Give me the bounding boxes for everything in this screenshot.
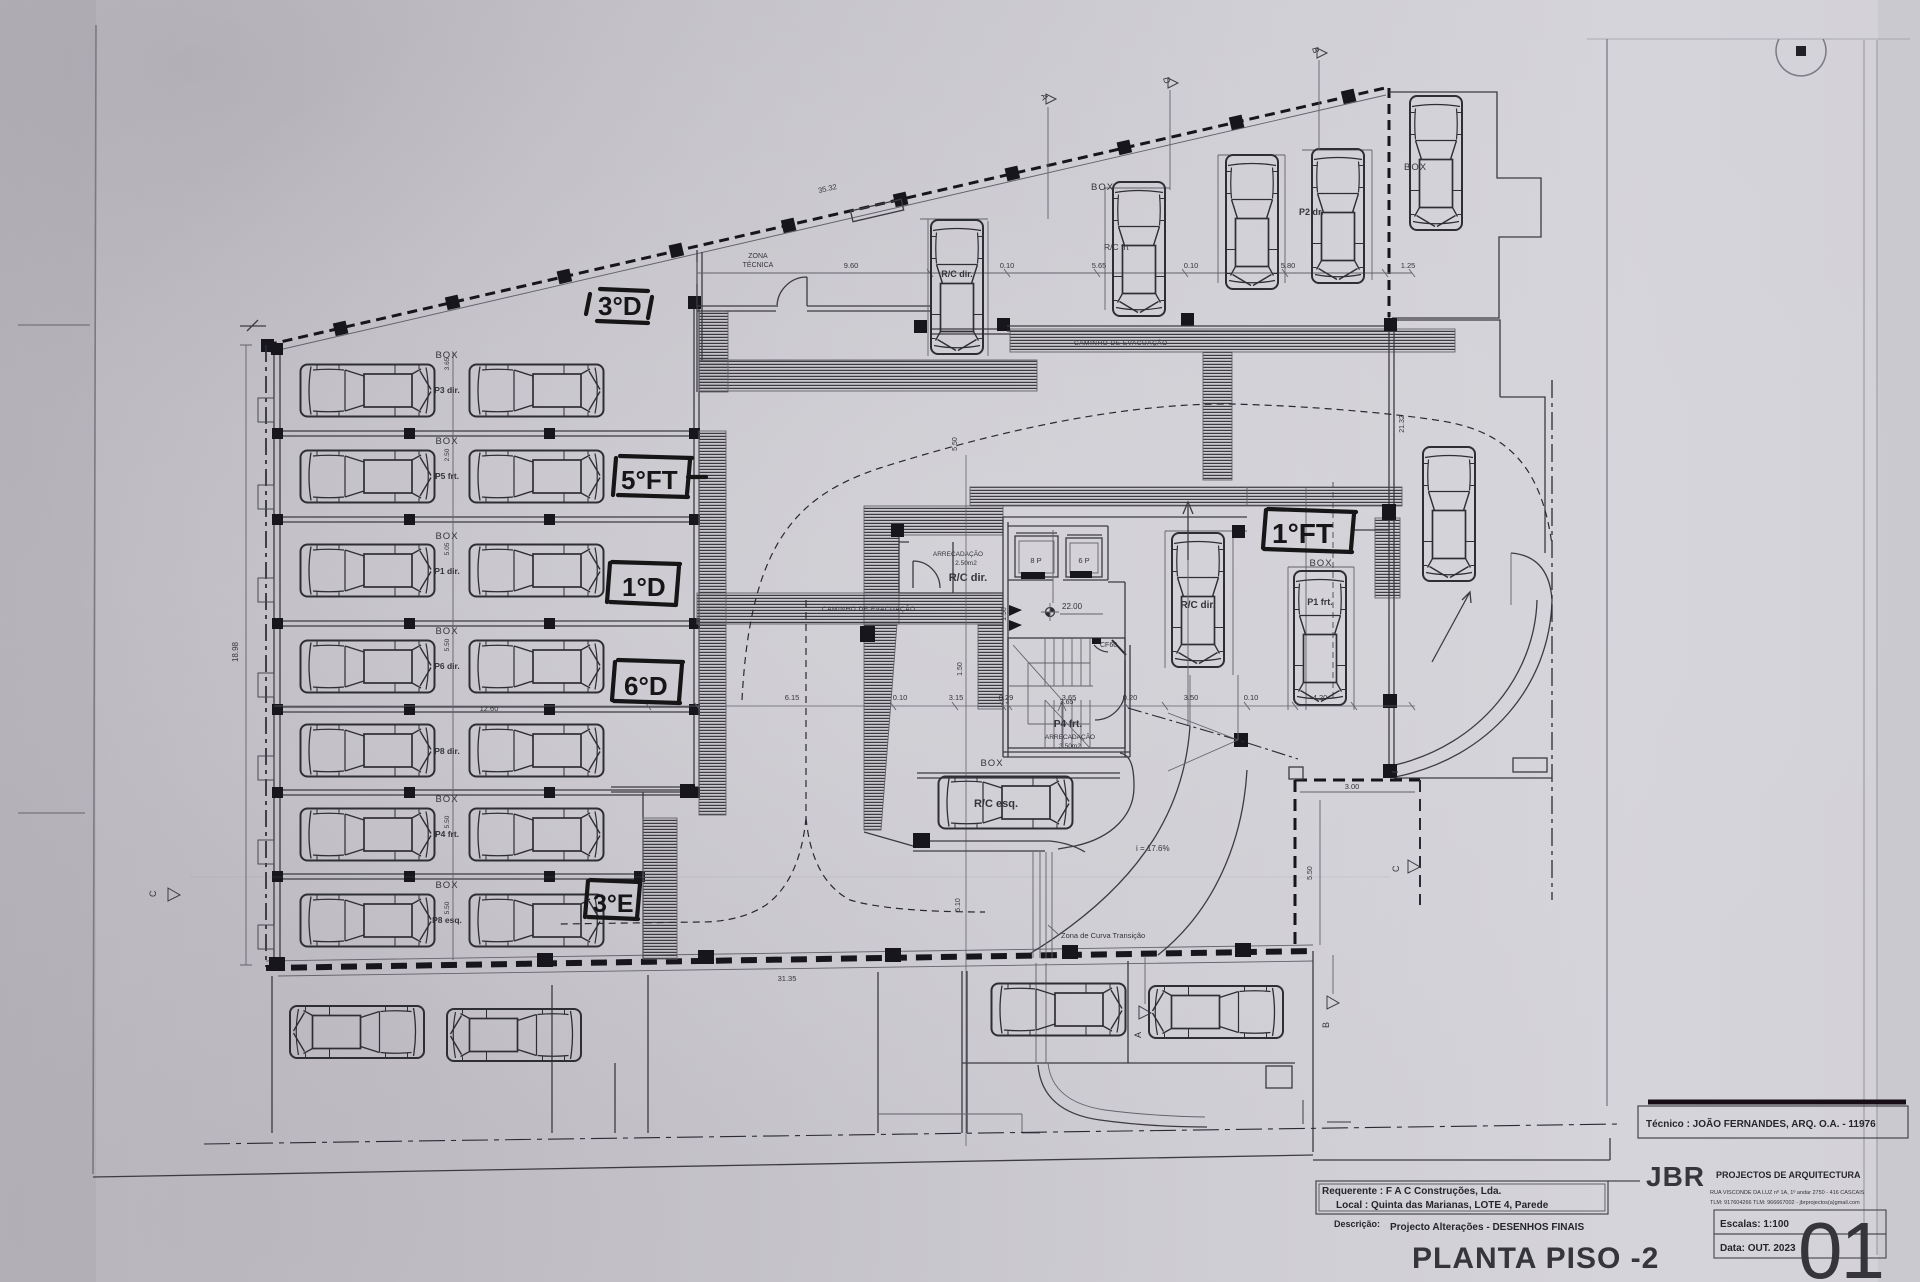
svg-text:P4 frt.: P4 frt.: [435, 829, 459, 839]
svg-text:CAMINHO DE EVACUAÇÃO: CAMINHO DE EVACUAÇÃO: [822, 604, 916, 613]
svg-text:3.50m2: 3.50m2: [1059, 743, 1081, 750]
svg-text:5.50: 5.50: [444, 815, 451, 828]
svg-text:21.32: 21.32: [1399, 415, 1406, 433]
svg-text:01: 01: [1798, 1206, 1883, 1282]
svg-text:P3 dir.: P3 dir.: [434, 385, 460, 395]
svg-text:PLANTA PISO -2: PLANTA PISO -2: [1412, 1242, 1659, 1275]
svg-text:Local : Quinta das Marianas, L: Local : Quinta das Marianas, LOTE 4, Par…: [1336, 1200, 1549, 1211]
svg-text:BOX: BOX: [435, 794, 458, 805]
svg-text:CF60: CF60: [1100, 642, 1117, 649]
svg-text:R/C dir.: R/C dir.: [941, 269, 973, 279]
svg-text:22.00: 22.00: [1062, 602, 1083, 611]
svg-text:0.10: 0.10: [1000, 261, 1015, 270]
svg-text:BOX: BOX: [435, 436, 458, 447]
svg-text:P4 frt.: P4 frt.: [1054, 719, 1083, 730]
svg-text:Técnico : JOÃO FERNANDES, ARQ.: Técnico : JOÃO FERNANDES, ARQ. O.A. - 11…: [1646, 1117, 1876, 1130]
svg-text:P8 dir.: P8 dir.: [434, 746, 460, 756]
svg-text:31.35: 31.35: [778, 974, 797, 983]
svg-text:R/C esq.: R/C esq.: [974, 798, 1018, 810]
svg-text:5.50: 5.50: [1307, 866, 1314, 880]
svg-text:6 P: 6 P: [1078, 556, 1089, 565]
svg-text:BOX: BOX: [980, 758, 1003, 769]
svg-text:5.50: 5.50: [444, 901, 451, 914]
svg-text:3°D: 3°D: [598, 291, 642, 321]
svg-text:ARRECADAÇÃO: ARRECADAÇÃO: [933, 549, 983, 558]
svg-text:BOX: BOX: [435, 531, 458, 542]
svg-text:ZONA: ZONA: [748, 253, 768, 260]
svg-text:0.29: 0.29: [999, 693, 1014, 702]
svg-text:P6 dir.: P6 dir.: [434, 661, 460, 671]
svg-text:3.15: 3.15: [949, 693, 964, 702]
svg-text:A: A: [1133, 1032, 1143, 1038]
svg-text:1.25: 1.25: [1401, 261, 1416, 270]
svg-text:9.60: 9.60: [844, 261, 859, 270]
svg-text:5.05: 5.05: [444, 542, 451, 555]
svg-text:BOX: BOX: [1309, 558, 1332, 569]
svg-text:BOX: BOX: [1404, 162, 1427, 173]
svg-text:1.50: 1.50: [1001, 607, 1008, 621]
svg-text:3.50: 3.50: [1184, 693, 1199, 702]
svg-text:R/C dir.: R/C dir.: [1180, 600, 1215, 611]
svg-text:5.80: 5.80: [1281, 261, 1296, 270]
svg-text:6.15: 6.15: [785, 693, 800, 702]
svg-text:18.98: 18.98: [231, 641, 240, 662]
svg-text:3°E: 3°E: [593, 890, 634, 918]
svg-text:C: C: [148, 890, 158, 897]
svg-text:i = 17.6%: i = 17.6%: [1136, 844, 1170, 853]
svg-text:5°FT: 5°FT: [621, 465, 678, 495]
svg-text:PROJECTOS DE ARQUITECTURA: PROJECTOS DE ARQUITECTURA: [1716, 1170, 1861, 1180]
svg-text:P1 frt.: P1 frt.: [1307, 597, 1333, 607]
svg-text:Data: OUT. 2023: Data: OUT. 2023: [1720, 1243, 1796, 1254]
svg-text:1°FT: 1°FT: [1272, 518, 1333, 549]
svg-text:2.50: 2.50: [444, 448, 451, 461]
svg-text:BOX: BOX: [1091, 182, 1114, 193]
svg-text:3.65: 3.65: [1062, 693, 1077, 702]
svg-text:P2 dr.: P2 dr.: [1299, 207, 1324, 217]
svg-text:B: B: [1321, 1022, 1331, 1028]
svg-text:12.60: 12.60: [480, 704, 499, 713]
svg-text:Requerente : F A C Construçõe: Requerente : F A C Construções, Lda.: [1322, 1186, 1502, 1197]
svg-text:5.10: 5.10: [955, 898, 962, 912]
svg-text:CAMINHO DE EVACUAÇÃO: CAMINHO DE EVACUAÇÃO: [1074, 338, 1168, 347]
svg-text:Escalas: 1:100: Escalas: 1:100: [1720, 1219, 1789, 1230]
svg-text:0.10: 0.10: [1244, 693, 1259, 702]
svg-text:Descrição:: Descrição:: [1334, 1219, 1380, 1229]
svg-text:1°D: 1°D: [622, 572, 666, 602]
svg-text:C: C: [1391, 865, 1401, 872]
svg-text:JBR: JBR: [1646, 1161, 1705, 1192]
svg-text:5.65: 5.65: [1092, 261, 1107, 270]
svg-text:RUA VISCONDE DA LUZ nº 1A, 1º: RUA VISCONDE DA LUZ nº 1A, 1º andar 2750…: [1710, 1189, 1865, 1196]
svg-text:TÉCNICA: TÉCNICA: [743, 260, 774, 269]
svg-text:4.20: 4.20: [1313, 693, 1328, 702]
svg-text:1.50: 1.50: [957, 662, 964, 676]
svg-text:BOX: BOX: [435, 626, 458, 637]
svg-text:Projecto Alterações - DESENHOS: Projecto Alterações - DESENHOS FINAIS: [1390, 1222, 1584, 1233]
svg-text:P1 dir.: P1 dir.: [434, 566, 460, 576]
svg-text:3.00: 3.00: [1345, 782, 1360, 791]
svg-text:P5 frt.: P5 frt.: [435, 471, 459, 481]
svg-text:P8 esq.: P8 esq.: [432, 915, 462, 925]
svg-text:Zona de Curva Transição: Zona de Curva Transição: [1061, 931, 1145, 940]
svg-text:5.50: 5.50: [952, 437, 959, 451]
svg-text:0.10: 0.10: [1184, 261, 1199, 270]
svg-text:BOX: BOX: [435, 880, 458, 891]
svg-text:5.50: 5.50: [444, 638, 451, 651]
svg-text:0.10: 0.10: [893, 693, 908, 702]
svg-text:R/C dir.: R/C dir.: [949, 572, 988, 584]
svg-text:R/C frt: R/C frt: [1104, 242, 1129, 252]
svg-text:ARRECADAÇÃO: ARRECADAÇÃO: [1045, 732, 1095, 741]
svg-text:6°D: 6°D: [624, 671, 668, 701]
svg-text:8 P: 8 P: [1030, 556, 1041, 565]
svg-text:0.20: 0.20: [1123, 693, 1138, 702]
svg-text:3.65: 3.65: [444, 357, 451, 370]
